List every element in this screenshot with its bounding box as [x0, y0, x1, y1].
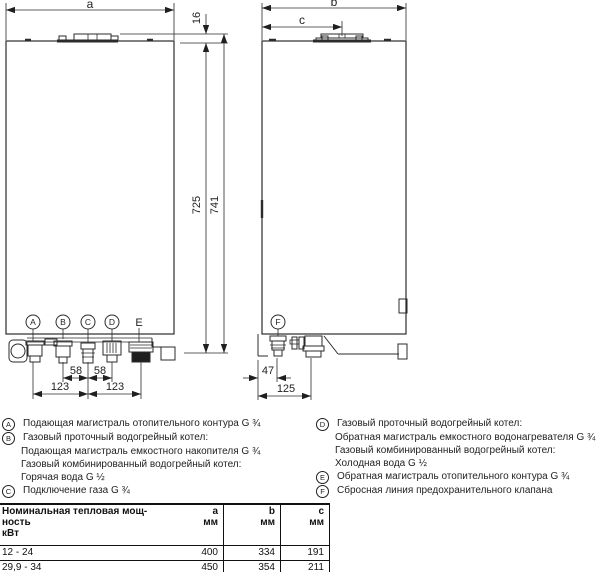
cell-power: 12 - 24	[0, 546, 159, 561]
legend-marker-e: E	[316, 471, 329, 484]
legend-text: Сбросная линия предохранительного клапан…	[337, 484, 552, 497]
cell-a: 450	[159, 561, 224, 572]
dim-label-47: 47	[262, 365, 274, 377]
front-view-connections	[9, 338, 175, 363]
cell-c: 191	[281, 546, 330, 561]
dim-label-58-left: 58	[70, 365, 82, 377]
cell-power: 29,9 - 34	[0, 561, 159, 572]
table-header-b: b мм	[224, 504, 281, 546]
technical-drawing: A B C D E a 16 725 741 58 58 123 123	[0, 0, 600, 415]
legend-marker-f: F	[316, 485, 329, 498]
legend-left-column: A Подающая магистраль отопительного конт…	[2, 417, 308, 498]
legend-text: Газовый комбинированный водогрейный коте…	[335, 444, 555, 457]
dim-label-b: b	[331, 0, 338, 9]
marker-label-e: E	[135, 317, 142, 329]
table-header-row: Номинальная тепловая мощ- ность кВт a мм…	[0, 504, 330, 546]
dim-label-a: a	[87, 0, 94, 11]
header-line: b	[226, 506, 275, 517]
marker-label-c: C	[85, 317, 91, 327]
header-line: c	[283, 506, 324, 517]
front-view-flue	[57, 34, 118, 41]
legend-text: Газовый проточный водогрейный котел:	[23, 431, 208, 444]
header-line: ность	[2, 517, 154, 528]
header-line: Номинальная тепловая мощ-	[2, 506, 154, 517]
table-row: 12 - 24 400 334 191	[0, 546, 330, 561]
header-line: мм	[161, 517, 218, 528]
legend-marker-b: B	[2, 432, 15, 445]
legend-marker-spacer	[316, 445, 327, 456]
dim-label-123-right: 123	[106, 381, 124, 393]
table-header-power: Номинальная тепловая мощ- ность кВт	[0, 504, 159, 546]
legend-right-column: D Газовый проточный водогрейный котел: О…	[316, 417, 598, 498]
legend-marker-spacer	[316, 458, 327, 469]
legend-marker-d: D	[316, 418, 329, 431]
legend-text: Газовый комбинированный водогрейный коте…	[21, 458, 241, 471]
legend-item: A Подающая магистраль отопительного конт…	[2, 417, 308, 431]
header-line: кВт	[2, 528, 154, 539]
dim-label-125: 125	[277, 383, 295, 395]
legend-item: B Газовый проточный водогрейный котел:	[2, 431, 308, 445]
dim-label-58-right: 58	[94, 365, 106, 377]
legend-item: F Сбросная линия предохранительного клап…	[316, 484, 598, 498]
legend-item: Холодная вода G ½	[316, 457, 598, 470]
table-header-c: c мм	[281, 504, 330, 546]
legend-text: Газовый проточный водогрейный котел:	[337, 417, 522, 430]
cell-a: 400	[159, 546, 224, 561]
legend-text: Обратная магистраль емкостного водонагре…	[335, 431, 595, 444]
side-view-connections	[258, 334, 407, 359]
legend-item: E Обратная магистраль отопительного конт…	[316, 470, 598, 484]
marker-label-f: F	[275, 317, 280, 327]
side-view-body	[262, 40, 407, 334]
legend-item: C Подключение газа G ¾	[2, 484, 308, 498]
legend-text: Обратная магистраль отопительного контур…	[337, 470, 569, 483]
legend-item: Горячая вода G ½	[2, 471, 308, 484]
legend-item: Обратная магистраль емкостного водонагре…	[316, 431, 598, 444]
manual-page: A B C D E a 16 725 741 58 58 123 123	[0, 0, 600, 572]
marker-label-d: D	[109, 317, 115, 327]
dimensions-table: Номинальная тепловая мощ- ность кВт a мм…	[0, 503, 330, 572]
legend-item: Подающая магистраль емкостного накопител…	[2, 445, 308, 458]
table-header-a: a мм	[159, 504, 224, 546]
legend-marker-spacer	[316, 432, 327, 443]
header-line: a	[161, 506, 218, 517]
dim-label-c: c	[299, 13, 305, 27]
legend-text: Холодная вода G ½	[335, 457, 427, 470]
marker-label-a: A	[30, 317, 36, 327]
legend-marker-spacer	[2, 446, 13, 457]
cell-c: 211	[281, 561, 330, 572]
legend-marker-spacer	[2, 472, 13, 483]
marker-label-b: B	[60, 317, 66, 327]
header-line: мм	[226, 517, 275, 528]
legend-text: Горячая вода G ½	[21, 471, 105, 484]
side-view-dimension-lines	[243, 3, 406, 400]
dim-label-741: 741	[209, 196, 221, 214]
dim-label-16: 16	[191, 12, 203, 24]
legend-text: Подающая магистраль отопительного контур…	[23, 417, 261, 430]
legend-marker-a: A	[2, 418, 15, 431]
legend-item: Газовый комбинированный водогрейный коте…	[2, 458, 308, 471]
legend-item: Газовый комбинированный водогрейный коте…	[316, 444, 598, 457]
cell-b: 334	[224, 546, 281, 561]
legend-text: Подающая магистраль емкостного накопител…	[21, 445, 260, 458]
front-view-body	[6, 40, 174, 334]
header-line: мм	[283, 517, 324, 528]
dim-label-123-left: 123	[51, 381, 69, 393]
legend-marker-spacer	[2, 459, 13, 470]
legend-text: Подключение газа G ¾	[23, 484, 130, 497]
dim-label-725: 725	[191, 196, 203, 214]
legend-marker-c: C	[2, 485, 15, 498]
cell-b: 354	[224, 561, 281, 572]
table-row: 29,9 - 34 450 354 211	[0, 561, 330, 572]
front-view-markers	[26, 315, 139, 343]
legend-item: D Газовый проточный водогрейный котел:	[316, 417, 598, 431]
